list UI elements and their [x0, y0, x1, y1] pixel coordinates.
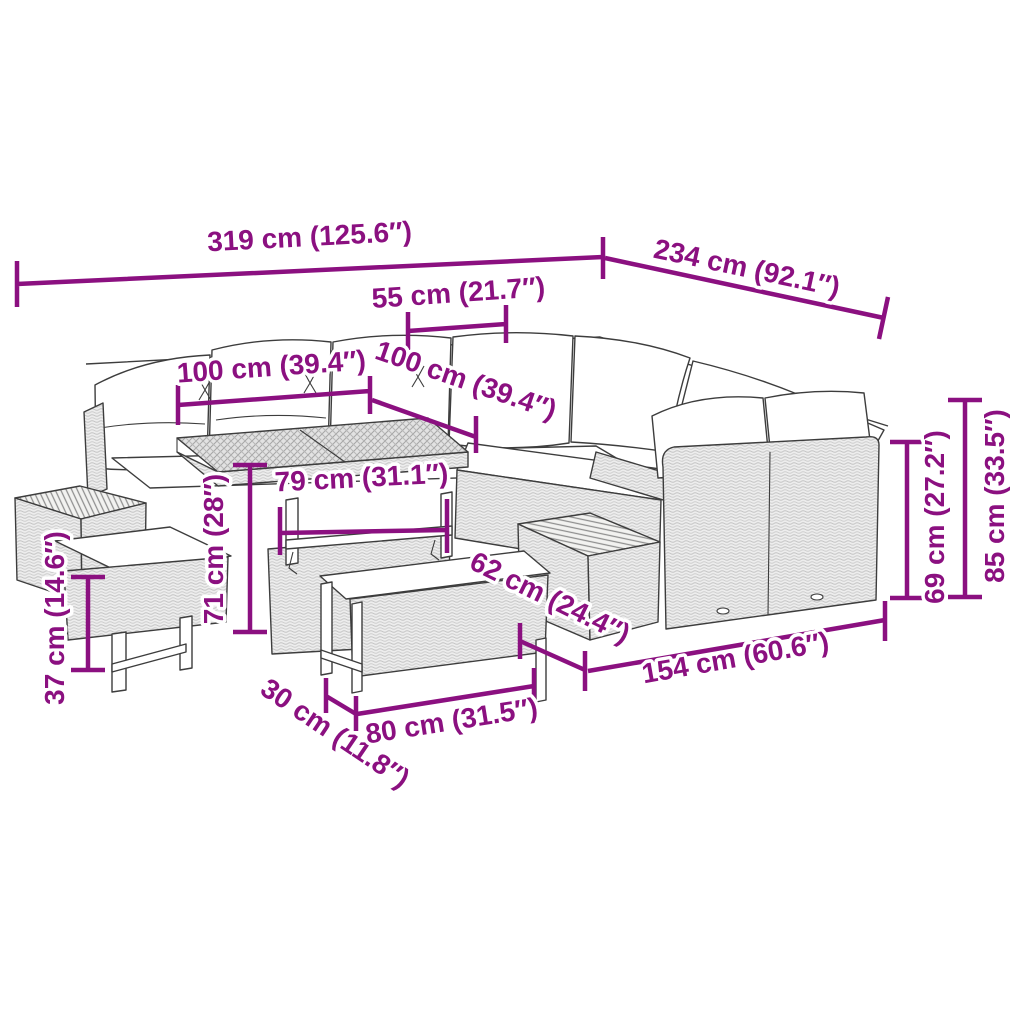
dim-label-section-length: 154 cm (60.6″) — [639, 626, 831, 689]
dim-line-total-height — [948, 400, 982, 597]
dim-line-table-height — [233, 465, 267, 632]
dim-label-bench-height: 37 cm (14.6″) — [39, 531, 70, 705]
dimension-diagram: 319 cm (125.6″) 234 cm (92.1″) 55 cm (21… — [0, 0, 1024, 1024]
dim-label-total-height: 85 cm (33.5″) — [979, 409, 1010, 583]
dim-label-total-depth: 234 cm (92.1″) — [651, 233, 843, 303]
dim-label-table-height: 71 cm (28″) — [198, 474, 229, 624]
dim-bench-length: 80 cm (31.5″) — [356, 668, 540, 750]
dim-total-depth: 234 cm (92.1″) — [605, 233, 888, 339]
corner-sofa-right-panel — [662, 437, 879, 629]
panel-foot — [717, 608, 729, 614]
bench-front-leg — [352, 602, 362, 693]
dim-backrest-height: 69 cm (27.2″) — [890, 430, 950, 604]
bench-left-leg — [180, 616, 192, 670]
sofa-left-arm — [84, 403, 107, 497]
dim-table-height: 71 cm (28″) — [198, 465, 267, 632]
diagram-canvas: 319 cm (125.6″) 234 cm (92.1″) 55 cm (21… — [0, 0, 1024, 1024]
dim-label-backrest-height: 69 cm (27.2″) — [919, 430, 950, 604]
panel-foot — [811, 594, 823, 600]
dim-label-arm-section: 55 cm (21.7″) — [371, 271, 546, 314]
dim-label-total-width: 319 cm (125.6″) — [206, 216, 412, 258]
right-panel-face — [662, 437, 879, 629]
dim-total-height: 85 cm (33.5″) — [948, 400, 1010, 597]
